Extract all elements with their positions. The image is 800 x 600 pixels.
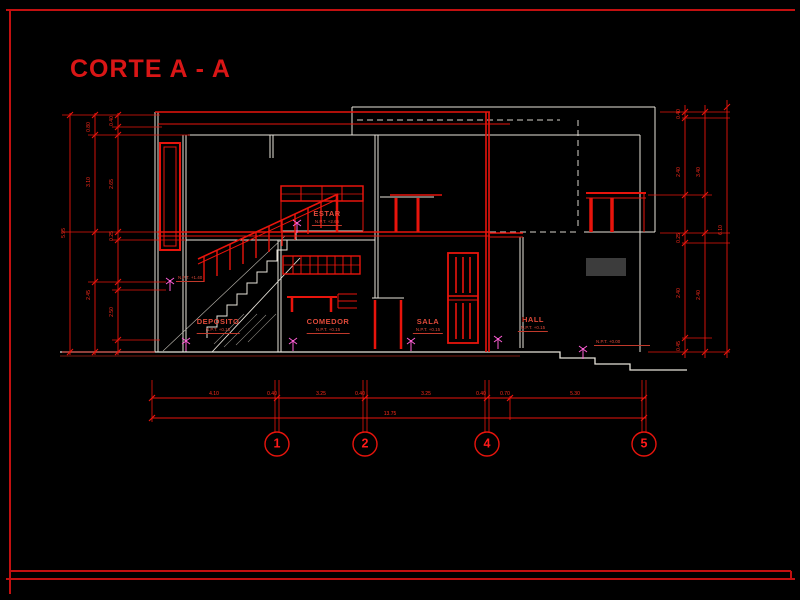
dim-bottom-total: 13.75 — [384, 411, 397, 417]
room-level: N.P.T. +0.15 — [518, 325, 548, 332]
dim-bottom-1: 0.40 — [267, 391, 277, 397]
room-name: SALA — [413, 317, 443, 326]
stair — [163, 236, 300, 352]
level-marker-icon — [405, 336, 417, 352]
dim-left-3: 2.45 — [86, 290, 92, 300]
room-level: N.P.T. +2.65 — [312, 219, 342, 226]
stair-railing — [198, 194, 338, 282]
dim-bottom-5: 0.40 — [476, 391, 486, 397]
level-marker-icon — [291, 218, 303, 234]
dim-left-overall: 5.95 — [61, 228, 67, 238]
room-level: N.P.T. +0.15 — [413, 327, 443, 334]
level-marker-icon — [180, 336, 192, 352]
hidden-dashed-lines — [357, 120, 578, 232]
dim-bottom-4: 3.25 — [421, 391, 431, 397]
walls-red — [155, 112, 523, 352]
grid-bubble-1: 1 — [274, 437, 281, 451]
room-name: DEPOSITO — [197, 317, 240, 326]
dim-right-2: 0.25 — [676, 233, 682, 243]
dim-right-1: 2.40 — [676, 167, 682, 177]
dim-left-2: 3.10 — [86, 177, 92, 187]
room-label-deposito: DEPOSITO N.P.T. +0.15 — [197, 317, 240, 334]
beam-gray — [586, 258, 626, 276]
room-name: COMEDOR — [307, 317, 350, 326]
section-linework — [0, 0, 800, 600]
room-name: HALL — [518, 315, 548, 324]
room-label-hall: HALL N.P.T. +0.15 — [518, 315, 548, 332]
dim-right-3: 2.40 — [676, 288, 682, 298]
drawing-title: CORTE A - A — [70, 55, 231, 84]
dim-right-0: 0.40 — [676, 109, 682, 119]
cad-sheet: CORTE A - A ESTAR N.P.T. +2.65 DEPOSITO … — [0, 0, 800, 600]
dim-right-5: 3.40 — [696, 167, 702, 177]
room-name: ESTAR — [312, 209, 342, 218]
dim-bottom-6: 0.70 — [500, 391, 510, 397]
ground-line — [60, 352, 687, 370]
terrace-railing — [586, 193, 646, 232]
dim-right-4: 0.45 — [676, 341, 682, 351]
dimension-chain-left — [62, 112, 190, 355]
stair-mid-level-text: N.P.T. +1.40 — [176, 275, 204, 282]
room-level: N.P.T. +0.15 — [307, 327, 350, 334]
dim-left-6: 0.25 — [109, 231, 115, 241]
dim-bottom-3: 0.40 — [355, 391, 365, 397]
exterior-level-text: N.P.T. +0.00 — [594, 339, 650, 346]
room-label-estar: ESTAR N.P.T. +2.65 — [312, 209, 342, 226]
grid-bubble-2: 2 — [362, 437, 369, 451]
room-label-sala: SALA N.P.T. +0.15 — [413, 317, 443, 334]
grid-bubble-4: 4 — [484, 437, 491, 451]
grid-bubble-circles — [265, 432, 656, 456]
walls-white — [155, 107, 655, 352]
dim-bottom-0: 4.10 — [209, 391, 219, 397]
room-label-comedor: COMEDOR N.P.T. +0.15 — [307, 317, 350, 334]
dim-left-1: 0.80 — [86, 122, 92, 132]
dim-right-6: 2.40 — [696, 290, 702, 300]
dim-right-overall: 6.10 — [718, 225, 724, 235]
level-marker-icon — [287, 336, 299, 352]
grid-bubble-5: 5 — [641, 437, 648, 451]
dim-left-7: 2.50 — [109, 307, 115, 317]
level-marker-icon — [164, 276, 176, 292]
level-marker-icon — [492, 334, 504, 350]
room-level: N.P.T. +0.15 — [197, 327, 240, 334]
dim-left-4: 0.40 — [109, 116, 115, 126]
grid-extension-lines — [152, 380, 646, 432]
dimension-lines-bottom — [149, 395, 647, 421]
dim-bottom-7: 5.30 — [570, 391, 580, 397]
dim-bottom-2: 3.25 — [316, 391, 326, 397]
level-marker-icon — [577, 344, 589, 360]
dim-left-5: 2.65 — [109, 179, 115, 189]
